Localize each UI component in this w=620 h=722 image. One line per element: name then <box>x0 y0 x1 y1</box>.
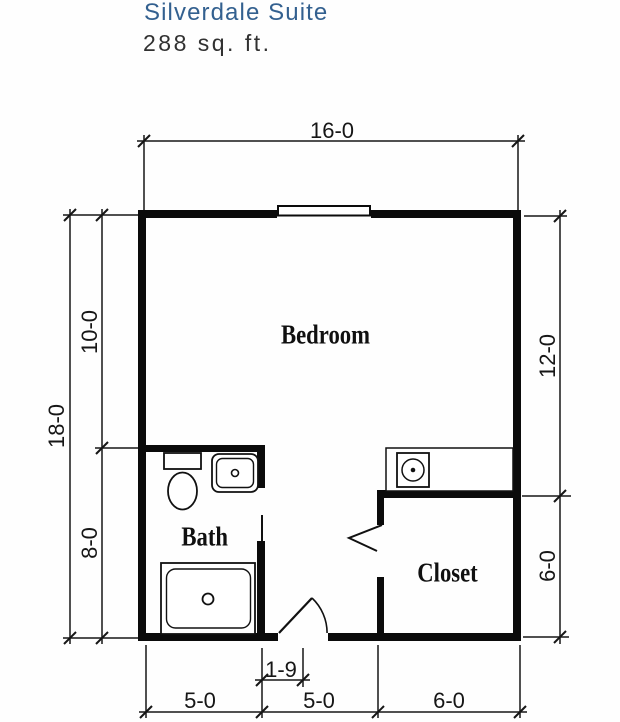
svg-text:8-0: 8-0 <box>77 527 102 559</box>
svg-text:5-0: 5-0 <box>303 688 335 713</box>
svg-text:5-0: 5-0 <box>184 688 216 713</box>
svg-text:Closet: Closet <box>417 559 478 588</box>
svg-text:18-0: 18-0 <box>44 404 69 448</box>
svg-text:6-0: 6-0 <box>433 688 465 713</box>
svg-text:Bath: Bath <box>181 523 228 552</box>
svg-text:6-0: 6-0 <box>535 550 560 582</box>
svg-text:1-9: 1-9 <box>265 657 297 682</box>
svg-text:Bedroom: Bedroom <box>281 321 370 350</box>
svg-text:10-0: 10-0 <box>77 310 102 354</box>
svg-text:16-0: 16-0 <box>310 118 354 143</box>
svg-text:12-0: 12-0 <box>535 334 560 378</box>
